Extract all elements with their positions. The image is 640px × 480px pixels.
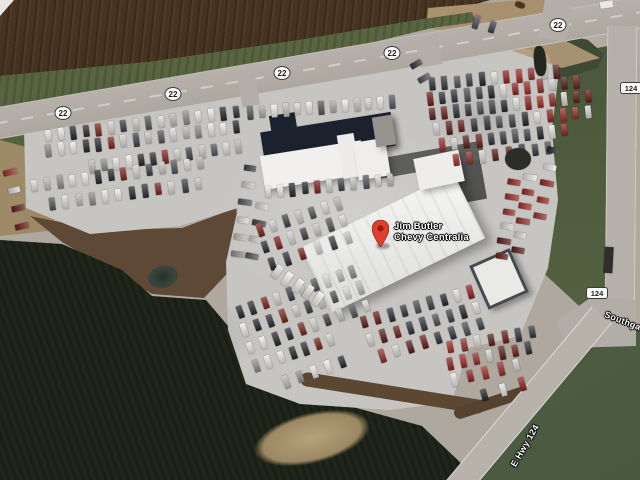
satellite-map[interactable]: 2222222222124124 SouthgateE Hwy 124 Jim … bbox=[0, 0, 640, 480]
pin-body bbox=[372, 220, 389, 247]
route-shield-124: 124 bbox=[586, 287, 608, 299]
place-marker-pin[interactable] bbox=[372, 220, 389, 247]
place-name-line1: Jim Butler bbox=[394, 221, 469, 232]
pin-hole bbox=[377, 225, 383, 231]
place-label[interactable]: Jim Butler Chevy Centralia bbox=[394, 221, 469, 243]
route-shield-22: 22 bbox=[55, 106, 72, 120]
route-shield-22: 22 bbox=[550, 18, 567, 32]
road-label: E Hwy 124 bbox=[509, 423, 541, 469]
place-name-line2: Chevy Centralia bbox=[394, 232, 469, 243]
route-shield-124: 124 bbox=[620, 82, 640, 94]
route-shield-22: 22 bbox=[165, 87, 182, 101]
road-labels-layer: SouthgateE Hwy 124 bbox=[0, 0, 640, 480]
route-shield-22: 22 bbox=[384, 46, 401, 60]
road-label: Southgate bbox=[603, 309, 640, 335]
route-shield-22: 22 bbox=[274, 66, 291, 80]
